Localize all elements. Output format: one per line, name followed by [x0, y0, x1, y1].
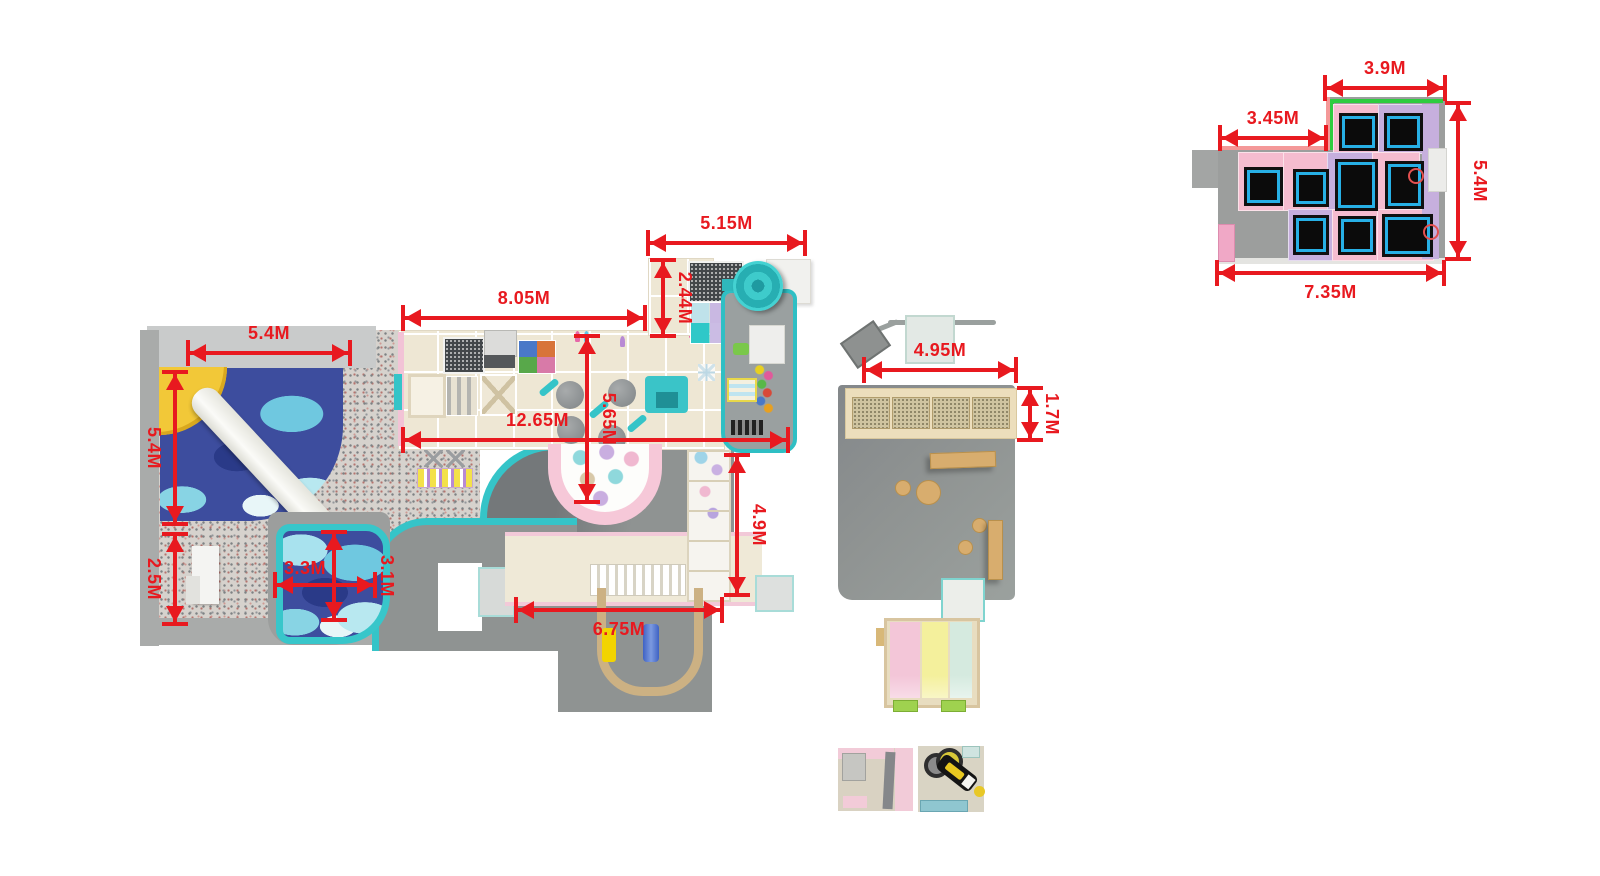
trampoline-pad [1342, 116, 1375, 148]
dimension-label: 5.4M [1469, 160, 1490, 202]
dimension-label: 5.4M [143, 427, 164, 469]
color-panel-2x2 [518, 340, 556, 374]
party-bench-side [988, 520, 1003, 580]
dimension-label: 12.65M [506, 410, 569, 431]
dimension-label: 2.5M [143, 558, 164, 600]
dimension-label: 7.35M [1304, 282, 1357, 303]
play-bench [727, 378, 757, 402]
dimension-label: 8.05M [498, 288, 551, 309]
party-exit-mat [941, 578, 985, 622]
rattan-panel [972, 397, 1010, 429]
trampoline-pad [1341, 219, 1373, 252]
crawl-drum-1 [556, 381, 584, 409]
teal-cube [962, 746, 980, 758]
blue-kart [643, 624, 659, 662]
trampoline-pad [1387, 116, 1420, 148]
party-stool-1 [895, 480, 911, 496]
teal-bench [920, 800, 968, 812]
white-platform-2 [749, 325, 785, 364]
ribbed-step [731, 420, 763, 435]
deck-teal-tab [394, 374, 402, 410]
table-mark-2 [446, 450, 465, 467]
spiral-slide [733, 261, 783, 311]
slide-step-tab [876, 628, 884, 646]
yellow-pouf [974, 786, 985, 797]
bordered-tile [408, 374, 446, 418]
dimension-label: 5.65M [598, 393, 619, 446]
green-toy [733, 343, 749, 355]
teal-playhouse-door [656, 392, 678, 408]
trampoline-pad [1247, 170, 1280, 203]
dimension-label: 5.4M [248, 323, 290, 344]
glass-cell-column [687, 443, 731, 602]
dimension-label: 5.15M [700, 213, 753, 234]
snowflake-tile [698, 364, 715, 381]
slide-lane-mint [950, 622, 972, 698]
reception-desk-step [186, 576, 200, 604]
dimension-label: 3.9M [1364, 58, 1406, 79]
mesh-platform-1 [443, 337, 485, 374]
trampoline-pad [1296, 172, 1326, 204]
rattan-fence [845, 388, 1017, 439]
side-platform [1428, 148, 1447, 192]
race-car-nose [961, 774, 975, 789]
hoop-ring-2 [1423, 224, 1439, 240]
floor-mat-square-right [755, 575, 794, 612]
rattan-panel [852, 397, 890, 429]
dimension-label: 4.95M [914, 340, 967, 361]
kid-figure-3 [620, 336, 625, 347]
gray-box-obstacle [484, 330, 517, 357]
party-stool-4 [958, 540, 973, 555]
trampoline-pad [1338, 162, 1375, 208]
party-stool-2 [916, 480, 941, 505]
safety-line-green-top [1330, 99, 1443, 103]
trampoline-pad [1296, 218, 1326, 252]
dimension-label: 4.9M [748, 504, 769, 546]
landing-mat-pink [1218, 224, 1235, 262]
pink-mat-small [843, 796, 867, 808]
dimension-label: 6.75M [593, 619, 646, 640]
dimension-label: 3.3M [284, 558, 326, 579]
pink-wall-right [895, 748, 913, 811]
race-car-stripe [944, 762, 965, 781]
deck-tab [1192, 150, 1218, 188]
dark-partition [883, 752, 896, 809]
rattan-panel [892, 397, 930, 429]
floor-plan-canvas: 5.4M 5.4M 2.5M 3.3M 3.1M 8.05M 12.65M 5.… [0, 0, 1600, 876]
slide-lane-pink [890, 622, 920, 698]
dimension-label: 3.1M [376, 555, 397, 597]
slide-lane-yellow [922, 622, 948, 698]
gray-box-shadow [484, 355, 515, 368]
hoop-ring-1 [1408, 168, 1424, 184]
slide-green-tab-2 [941, 700, 966, 712]
table-mark-1 [424, 450, 443, 467]
party-stool-3 [972, 518, 987, 533]
floor-gap [438, 563, 482, 631]
slide-green-tab-1 [893, 700, 918, 712]
rattan-panel [932, 397, 970, 429]
party-bench-top [930, 451, 997, 469]
ladder-tile [446, 376, 478, 416]
toy-track-strip [417, 468, 473, 488]
kids-room-left [838, 748, 913, 811]
dimension-label: 2.44M [674, 272, 695, 325]
kids-room-right [918, 746, 984, 812]
dimension-label: 1.7M [1041, 393, 1062, 435]
dimension-label: 3.45M [1247, 108, 1300, 129]
equipment-block [842, 753, 866, 781]
